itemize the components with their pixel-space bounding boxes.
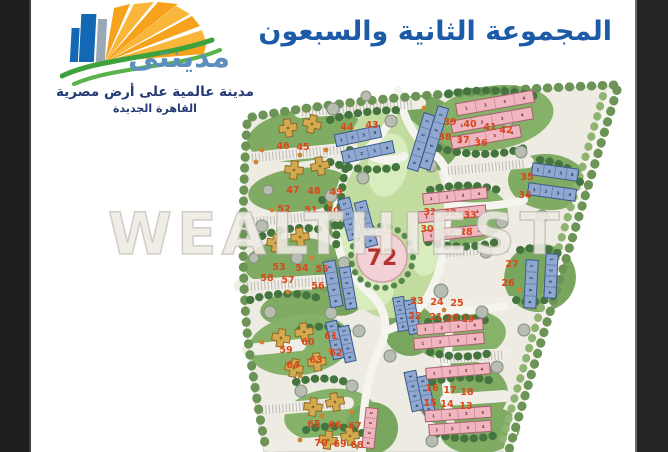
lot-number: 47 — [286, 185, 299, 196]
lot-number: 69 — [333, 439, 346, 450]
lot-number: 28 — [459, 227, 473, 238]
lot-number: 29 — [441, 226, 454, 237]
lot-number: 56 — [311, 281, 325, 292]
lot-number: 70 — [314, 438, 328, 449]
lot-number: 46 — [276, 141, 290, 152]
apartment-building: 1234 — [544, 254, 558, 299]
lot-number: 66 — [328, 420, 342, 431]
unit-number: 1 — [549, 258, 554, 261]
unit-number: 4 — [481, 410, 484, 415]
unit-number: 2 — [549, 269, 554, 272]
lot-number: 48 — [307, 186, 321, 197]
page-title: المجموعة الثانية والسبعون — [252, 16, 612, 47]
unit-number: 3 — [528, 288, 533, 291]
lot-number: 37 — [456, 135, 469, 146]
lot-number: 57 — [281, 275, 294, 286]
logo-subtitle: القاهرة الجديدة — [52, 102, 258, 115]
unit-number: 4 — [527, 300, 532, 303]
lot-number: 36 — [474, 138, 488, 149]
lot-number: 44 — [340, 122, 354, 133]
lot-number: 38 — [438, 132, 452, 143]
screenshot-root: 72 1234123412341234123412341234123412341… — [0, 0, 668, 452]
unit-number: 4 — [547, 291, 552, 294]
unit-number: 3 — [548, 280, 553, 283]
lot-number: 63 — [309, 355, 322, 366]
lot-number: 21 — [429, 312, 442, 323]
letterbox-left — [0, 0, 31, 452]
lot-number: 17 — [443, 385, 456, 396]
lot-number: 65 — [307, 419, 320, 430]
lot-number: 62 — [329, 348, 342, 359]
logo-name: مدينتى — [128, 40, 258, 75]
lot-number: 52 — [277, 204, 290, 215]
lot-number: 20 — [445, 313, 459, 324]
lot-number: 45 — [296, 142, 309, 153]
lot-number: 22 — [408, 311, 421, 322]
lot-number: 43 — [365, 120, 378, 131]
lot-number: 31 — [423, 207, 436, 218]
lot-number: 41 — [483, 122, 496, 133]
lot-number: 55 — [315, 264, 328, 275]
buildings-icon — [70, 14, 107, 62]
lot-number: 49 — [329, 187, 342, 198]
lot-number: 14 — [440, 399, 454, 410]
unit-number: 4 — [482, 424, 485, 429]
group-number-label: 72 — [367, 246, 398, 271]
lot-number: 54 — [295, 263, 309, 274]
lot-number: 60 — [301, 337, 315, 348]
lot-number: 51 — [304, 205, 317, 216]
unit-number: 3 — [466, 425, 469, 430]
lot-number: 30 — [420, 224, 434, 235]
lot-number: 27 — [505, 259, 518, 270]
lot-number: 39 — [443, 117, 456, 128]
lot-number: 64 — [286, 360, 300, 371]
lot-number: 58 — [260, 273, 274, 284]
lot-number: 13 — [459, 401, 472, 412]
unit-number: 2 — [451, 426, 454, 431]
letterbox-right — [635, 0, 668, 452]
lot-number: 18 — [460, 387, 474, 398]
unit-number: 2 — [448, 412, 451, 417]
lot-number: 26 — [501, 278, 515, 289]
lot-number: 16 — [425, 383, 439, 394]
logo-tagline: مدينة عالمية على أرض مصرية — [52, 84, 258, 100]
lot-number: 68 — [350, 440, 364, 451]
lot-number: 40 — [463, 119, 477, 130]
lot-number: 67 — [348, 421, 361, 432]
lot-number: 61 — [324, 331, 337, 342]
lot-number: 34 — [518, 190, 532, 201]
unit-number: 1 — [529, 264, 534, 267]
lot-number: 24 — [430, 297, 444, 308]
lot-number: 33 — [463, 210, 476, 221]
lot-number: 15 — [423, 398, 436, 409]
lot-number: 19 — [461, 314, 474, 325]
lot-number: 25 — [450, 298, 463, 309]
apartment-building: 1234 — [524, 260, 538, 309]
lot-number: 42 — [499, 125, 512, 136]
lot-number: 59 — [279, 345, 292, 356]
unit-number: 1 — [432, 413, 435, 418]
unit-number: 2 — [529, 276, 534, 279]
unit-number: 1 — [435, 427, 438, 432]
lot-number: 50 — [326, 206, 340, 217]
madinaty-logo: مدينتى مدينة عالمية على أرض مصرية القاهر… — [50, 0, 270, 120]
lot-number: 23 — [410, 296, 423, 307]
lot-number: 53 — [272, 262, 285, 273]
lot-number: 35 — [520, 172, 533, 183]
lot-number: 32 — [443, 208, 456, 219]
